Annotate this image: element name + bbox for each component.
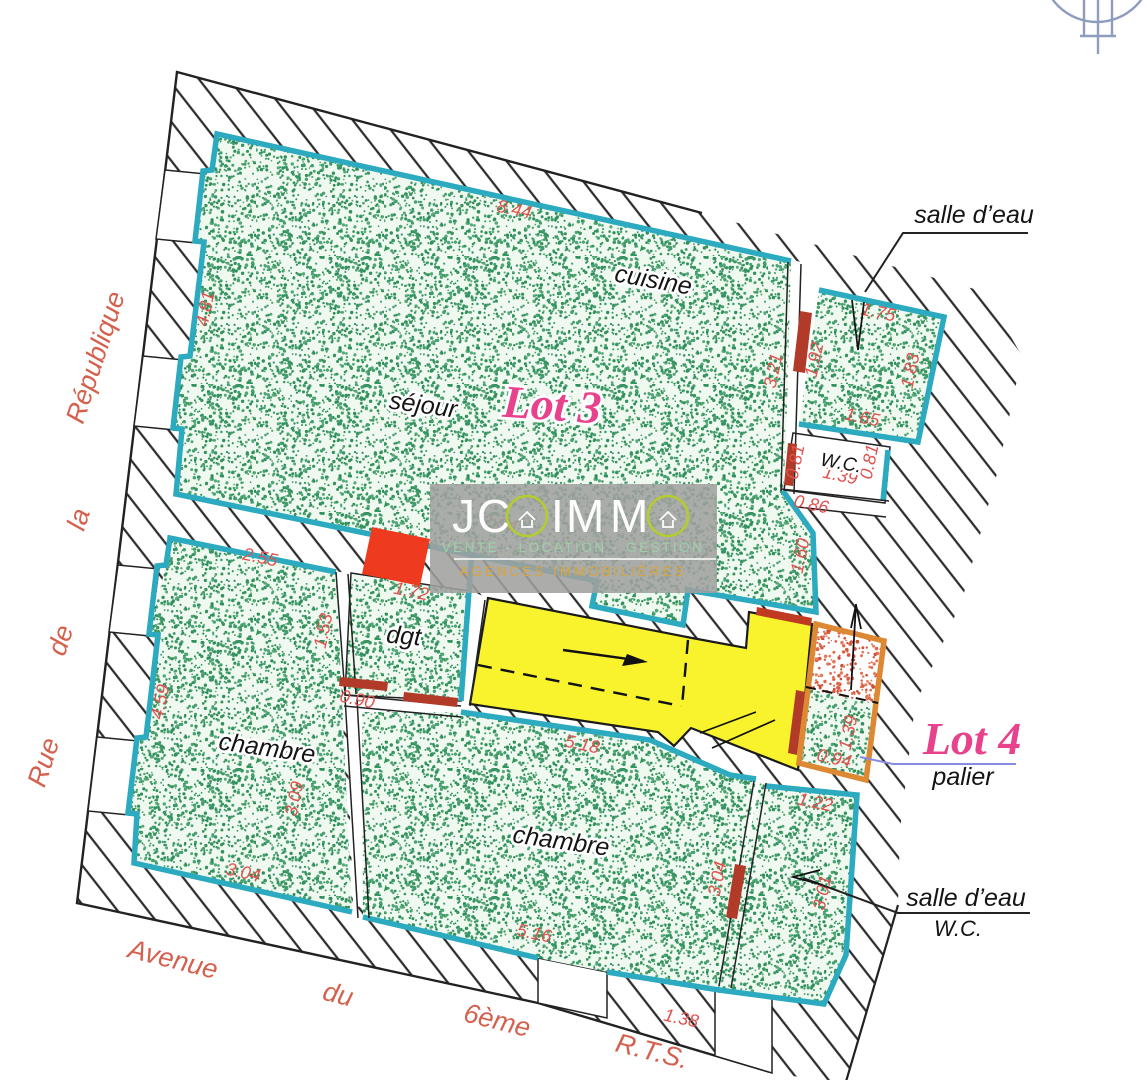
- svg-text:AGENCES IMMOBILIÈRES: AGENCES IMMOBILIÈRES: [459, 564, 686, 579]
- svg-text:M: M: [610, 490, 648, 542]
- svg-text:J: J: [452, 490, 475, 542]
- svg-text:salle d’eau: salle d’eau: [914, 201, 1034, 229]
- svg-text:M: M: [566, 490, 604, 542]
- svg-text:VENTE - LOCATION - GESTION: VENTE - LOCATION - GESTION: [442, 540, 705, 555]
- svg-text:Lot 4: Lot 4: [922, 713, 1021, 764]
- svg-text:W.C.: W.C.: [934, 916, 982, 941]
- svg-text:I: I: [551, 490, 564, 542]
- svg-text:salle d’eau: salle d’eau: [906, 884, 1026, 912]
- svg-text:C: C: [477, 490, 510, 542]
- svg-text:Lot 3: Lot 3: [500, 376, 603, 434]
- svg-text:dgt: dgt: [385, 621, 423, 652]
- svg-text:palier: palier: [931, 763, 995, 791]
